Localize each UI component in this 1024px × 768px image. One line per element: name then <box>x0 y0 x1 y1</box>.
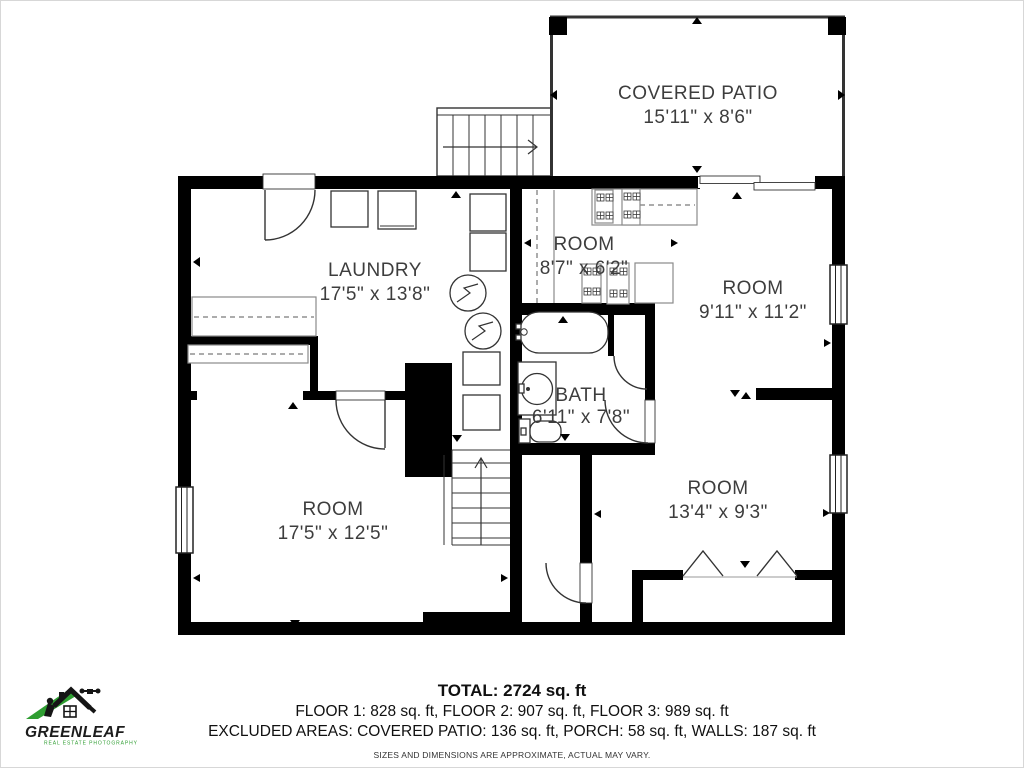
room-label-room-left-bottom: ROOM <box>302 499 363 520</box>
room-label-room-right-top: ROOM <box>722 278 783 299</box>
room-label-laundry: LAUNDRY <box>328 260 422 281</box>
water-heater <box>450 275 486 311</box>
room-dims-covered-patio: 15'11" x 8'6" <box>643 107 752 128</box>
floor-areas: FLOOR 1: 828 sq. ft, FLOOR 2: 907 sq. ft… <box>0 703 1024 721</box>
linen-closet-door <box>614 356 647 389</box>
stair-direction-arrow <box>443 140 537 154</box>
appliance <box>378 191 416 229</box>
room-dims-room-left-bottom: 17'5" x 12'5" <box>278 523 389 544</box>
interior-stairs <box>444 450 510 545</box>
logo-brand: GREENLEAF <box>25 724 125 741</box>
room-dims-bath: 6'11" x 7'8" <box>532 407 630 428</box>
window <box>830 455 847 513</box>
porch-step <box>423 612 515 622</box>
area-summary: TOTAL: 2724 sq. ft FLOOR 1: 828 sq. ft, … <box>0 681 1024 760</box>
logo-window <box>64 706 76 717</box>
room-dims-laundry: 17'5" x 13'8" <box>320 284 431 305</box>
exterior-stairs <box>437 108 551 176</box>
room-label-covered-patio: COVERED PATIO <box>618 83 778 104</box>
room-dims-room-right-top: 9'11" x 11'2" <box>699 302 807 323</box>
stair-direction-arrow <box>475 458 487 545</box>
total-area: TOTAL: 2724 sq. ft <box>0 681 1024 701</box>
sliding-door <box>698 176 815 190</box>
room-label-kitchen: ROOM <box>553 234 614 255</box>
greenleaf-logo: GREENLEAF REAL ESTATE PHOTOGRAPHY <box>22 682 152 752</box>
logo-tagline: REAL ESTATE PHOTOGRAPHY <box>44 741 138 747</box>
counter <box>192 297 316 336</box>
hall-to-room-door <box>546 563 592 603</box>
counter <box>635 263 673 303</box>
room-label-room-right-bottom: ROOM <box>687 478 748 499</box>
floorplan-page: COVERED PATIO 15'11" x 8'6" LAUNDRY 17'5… <box>0 0 1024 768</box>
excluded-areas: EXCLUDED AREAS: COVERED PATIO: 136 sq. f… <box>0 723 1024 741</box>
appliance <box>331 191 368 227</box>
appliance <box>470 194 506 231</box>
closet-bifold-doors <box>683 551 797 577</box>
laundry-to-room-door <box>336 391 385 449</box>
patio-corner-post <box>549 17 567 35</box>
patio-corner-post <box>828 17 846 35</box>
water-heater <box>465 313 501 349</box>
room-dims-room-right-bottom: 13'4" x 9'3" <box>668 502 768 523</box>
appliance <box>463 395 500 430</box>
drone-icon <box>80 689 101 695</box>
laundry-entry-door <box>263 174 315 240</box>
floor-plan: COVERED PATIO 15'11" x 8'6" LAUNDRY 17'5… <box>0 0 1024 672</box>
closet-shelf <box>188 345 308 363</box>
disclaimer: SIZES AND DIMENSIONS ARE APPROXIMATE, AC… <box>0 750 1024 760</box>
appliance <box>463 352 500 385</box>
appliance <box>470 233 506 271</box>
room-label-bath: BATH <box>555 385 606 406</box>
window <box>176 487 193 553</box>
window <box>830 265 847 324</box>
room-dims-kitchen: 8'7" x 6'2" <box>540 258 629 279</box>
